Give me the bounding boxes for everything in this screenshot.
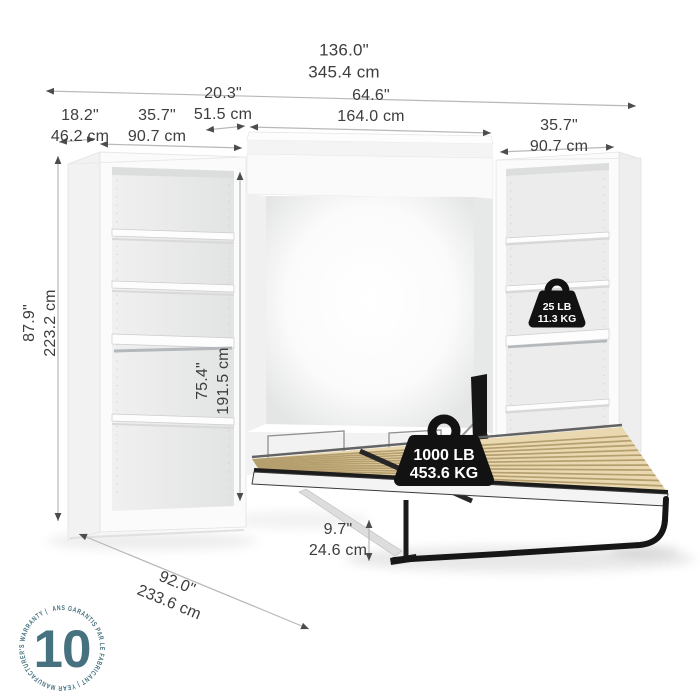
bed-capacity-kg: 453.6 KG (410, 465, 478, 482)
dim-interior-height-label: 75.4"191.5 cm (192, 347, 234, 414)
dim-left-shelf-width-label: 35.7"90.7 cm (128, 105, 186, 147)
bed-capacity-lb: 1000 LB (413, 447, 474, 464)
dim-total-width-label: 136.0"345.4 cm (308, 40, 380, 85)
dim-frame-height-label: 9.7"24.6 cm (309, 519, 367, 561)
warranty-years: 10 (34, 620, 91, 679)
dim-total-height-label: 87.9"223.2 cm (19, 289, 61, 356)
dim-bed-depth-closed-label: 20.3"51.5 cm (194, 83, 252, 125)
dim-bed-width-line (250, 127, 491, 133)
shelf-capacity-kg: 11.3 KG (538, 313, 577, 325)
shelf-capacity-lb: 25 LB (543, 301, 572, 313)
product-dimension-diagram: 25 LB 11.3 KG 1000 LB 453.6 KG ANS GARAN… (0, 0, 700, 700)
dim-right-shelf-width-label: 35.7"90.7 cm (530, 115, 588, 157)
left-bookcase (68, 152, 246, 540)
dim-bed-width-label: 64.6"164.0 cm (337, 85, 404, 127)
dim-side-depth-label: 18.2"46.2 cm (51, 105, 109, 147)
dim-bed-depth-closed-line (206, 126, 245, 130)
warranty-badge: ANS GARANTIS PAR LE FABRICANT | YEAR MAN… (5, 591, 119, 700)
